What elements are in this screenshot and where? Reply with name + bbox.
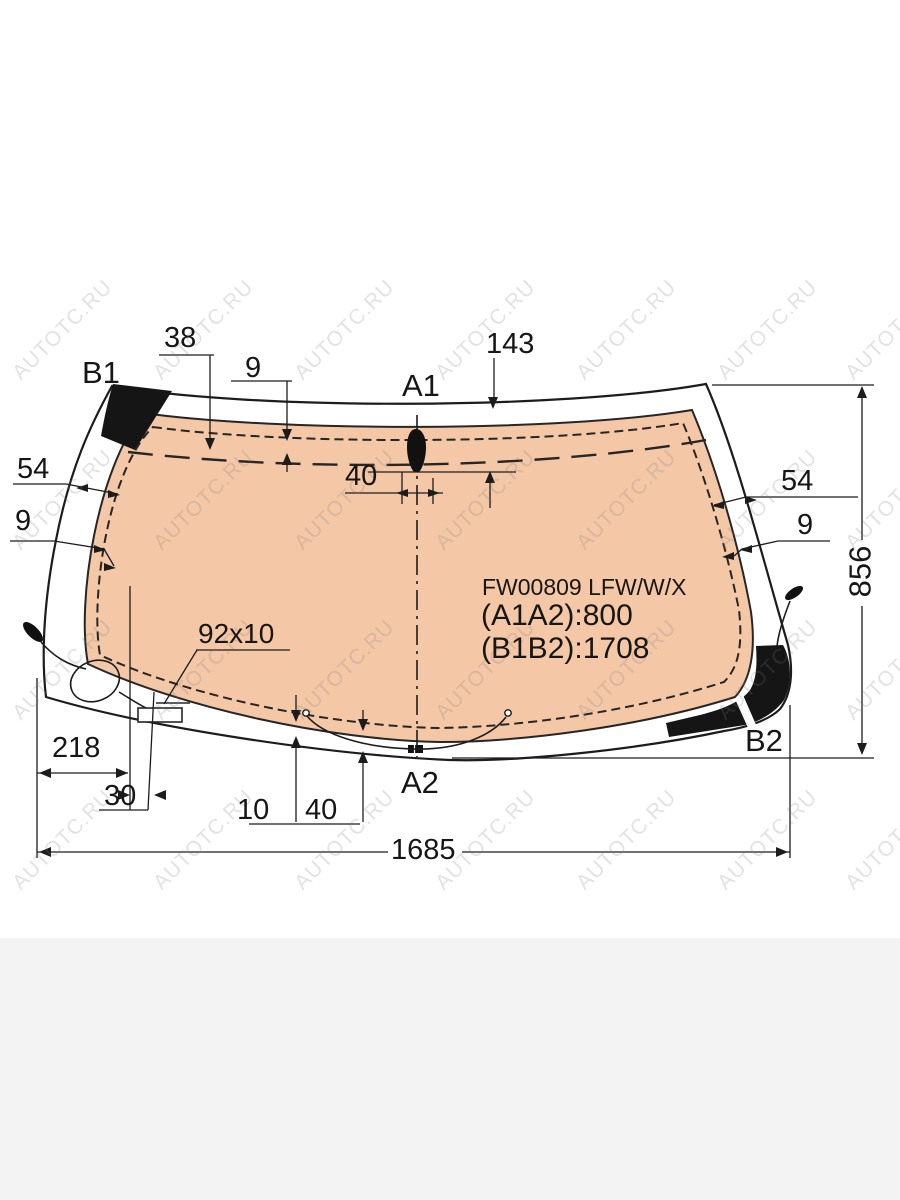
bracket-92x10 (138, 708, 182, 722)
arrow-1685-right (776, 847, 788, 857)
right-connector-oval (783, 583, 805, 602)
label-b2: B2 (745, 725, 783, 756)
dim-label-30: 30 (104, 782, 136, 811)
center-wire-terminal-left (303, 710, 309, 716)
dim-label-54-right: 54 (781, 467, 813, 496)
label-a2: A2 (401, 767, 439, 798)
part-code-text: FW00809 LFW/W/X (482, 576, 686, 599)
center-wire-terminal-right (505, 710, 511, 716)
arrow-30-right (154, 790, 166, 800)
dim-label-40-bottom: 40 (305, 796, 337, 825)
dim-label-9-left: 9 (15, 507, 31, 536)
arrow-856-down (857, 743, 867, 755)
dim-label-40-top: 40 (345, 462, 377, 491)
dim-label-38: 38 (164, 324, 196, 353)
left-connector-oval (20, 619, 46, 645)
dim-label-92x10: 92x10 (198, 620, 274, 648)
label-b1: B1 (82, 357, 120, 388)
dim-label-9-right: 9 (797, 511, 813, 540)
arrow-218-right (116, 768, 128, 778)
arrow-218-left (39, 768, 51, 778)
dim-label-54-left: 54 (17, 455, 49, 484)
label-a1: A1 (402, 370, 440, 401)
dim-label-10-bottom: 10 (237, 796, 269, 825)
arrow-1685-left (39, 847, 51, 857)
dim-label-856: 856 (845, 530, 876, 614)
dim-label-218: 218 (52, 734, 100, 763)
windshield-diagram-page: AUTOTC.RUAUTOTC.RUAUTOTC.RUAUTOTC.RUAUTO… (0, 0, 900, 1200)
dim-label-1685: 1685 (391, 836, 456, 865)
a1a2-length-text: (A1A2):800 (481, 601, 633, 631)
footer-band (0, 938, 900, 1200)
b1b2-length-text: (B1B2):1708 (481, 634, 649, 664)
dim-label-9-top: 9 (245, 354, 261, 383)
arrow-856-up (857, 386, 867, 398)
dim-label-143: 143 (486, 330, 534, 359)
